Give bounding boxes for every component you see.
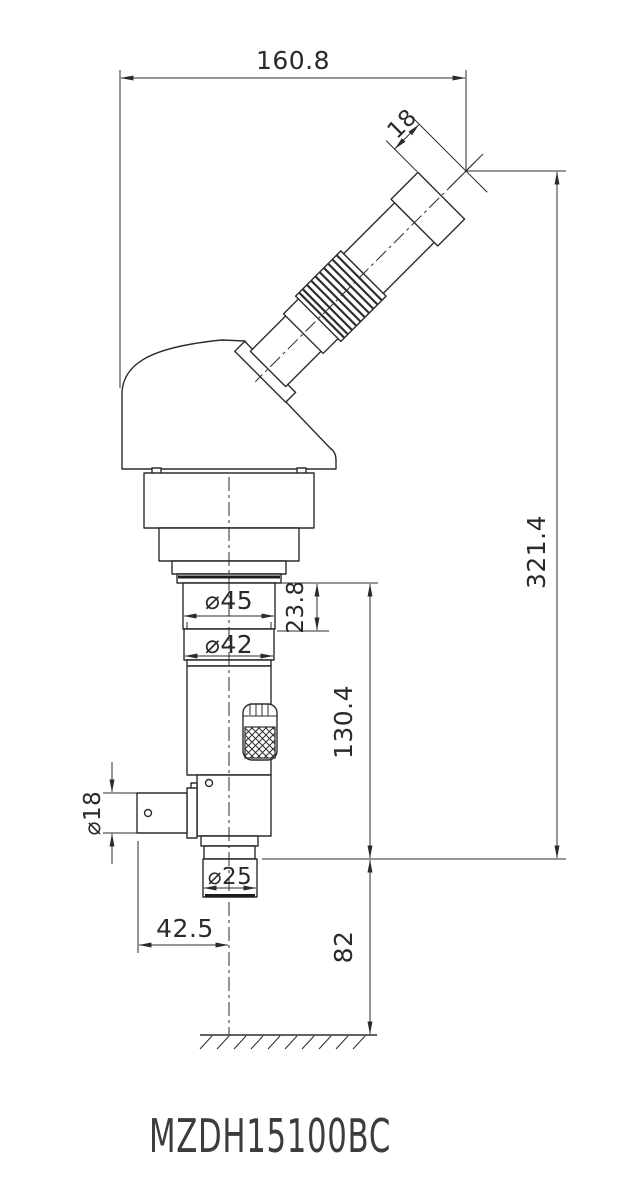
dim-mount-height-label: 82 <box>329 931 358 964</box>
dimensions: 160.8 321.4 23.8 130.4 82 ⌀45 ⌀42 ⌀18 ⌀ <box>80 46 566 1034</box>
dim-dia45-label: ⌀45 <box>205 586 253 615</box>
knob-knurl-hatch <box>245 727 275 758</box>
dim-dia42-label: ⌀42 <box>205 630 253 659</box>
dim-port-dia-label: ⌀18 <box>80 791 106 836</box>
focus-mount-block <box>197 775 271 836</box>
port-collar <box>187 788 197 838</box>
dim-flange-height-label: 23.8 <box>283 580 309 633</box>
dim-spigot-dia-label: ⌀25 <box>208 864 253 890</box>
eye-relief-extension-line <box>386 141 417 172</box>
ground-plane <box>200 1035 377 1049</box>
body-stack <box>137 468 314 897</box>
zoom-knob <box>243 704 277 760</box>
model-name-label: MZDH15100BC <box>149 1109 391 1163</box>
dim-lower-body-height-label: 130.4 <box>329 685 358 759</box>
dim-port-offset-label: 42.5 <box>156 914 214 943</box>
technical-drawing: 18 <box>0 0 622 1198</box>
dim-total-height-label: 321.4 <box>522 515 551 589</box>
drawing-sheet: 18 <box>0 0 622 1198</box>
eye-relief-label: 18 <box>383 104 423 144</box>
dim-total-width-label: 160.8 <box>256 46 330 75</box>
